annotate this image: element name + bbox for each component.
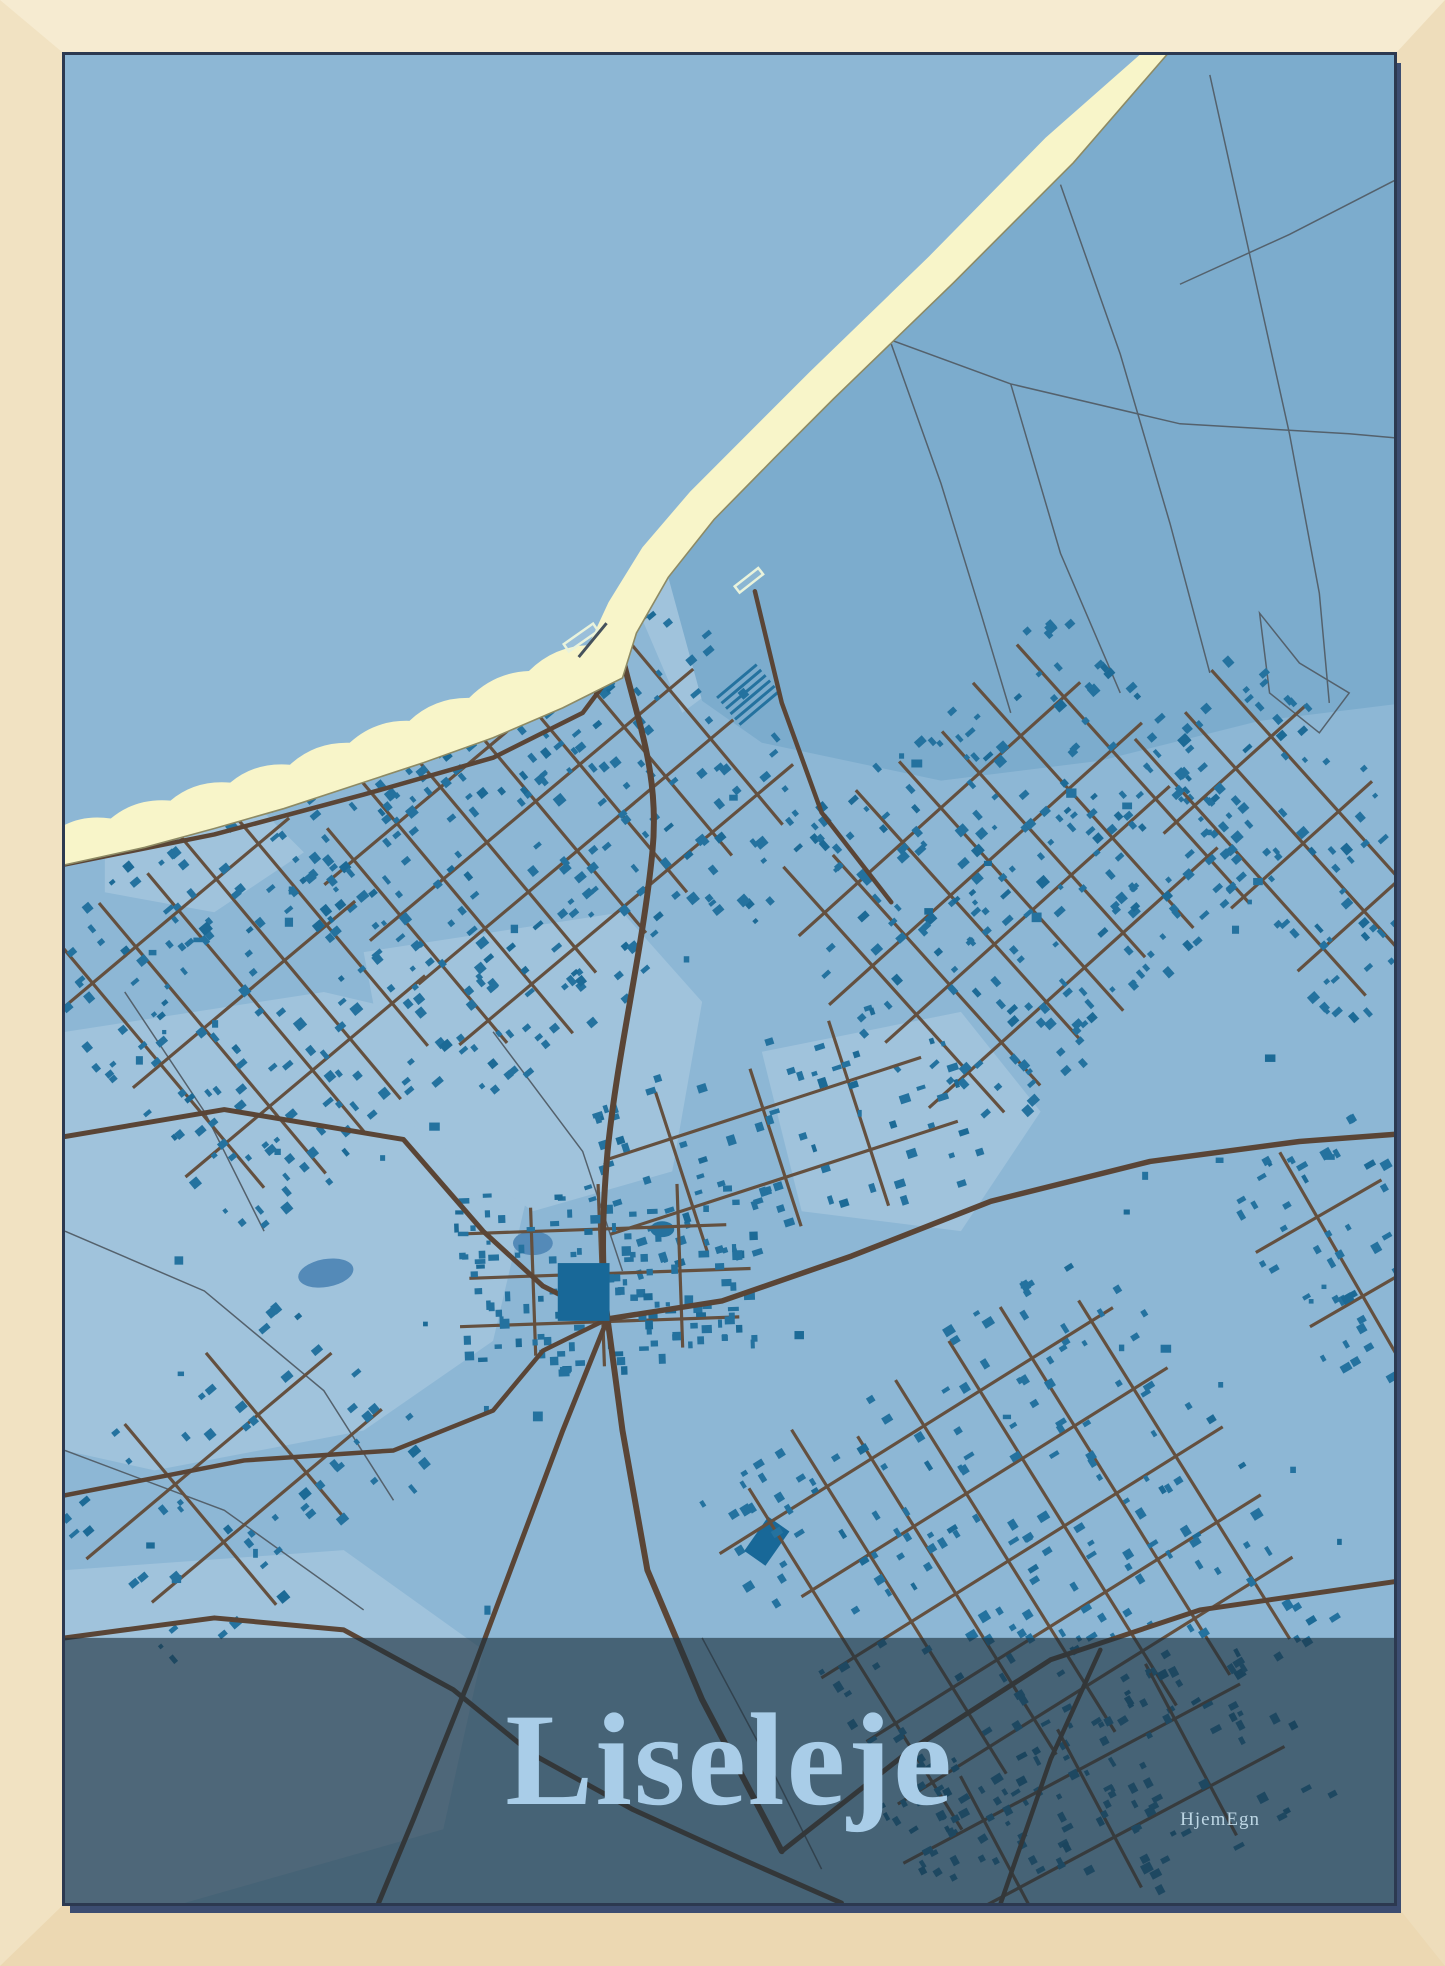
overlay-band: [65, 1638, 1394, 1903]
picture-frame: Liseleje HjemEgn: [0, 0, 1445, 1966]
city-map: [65, 55, 1394, 1903]
brand-logo: HjemEgn: [1180, 1809, 1260, 1831]
town-centre-block: [558, 1263, 610, 1321]
map-poster: Liseleje HjemEgn: [62, 52, 1397, 1906]
